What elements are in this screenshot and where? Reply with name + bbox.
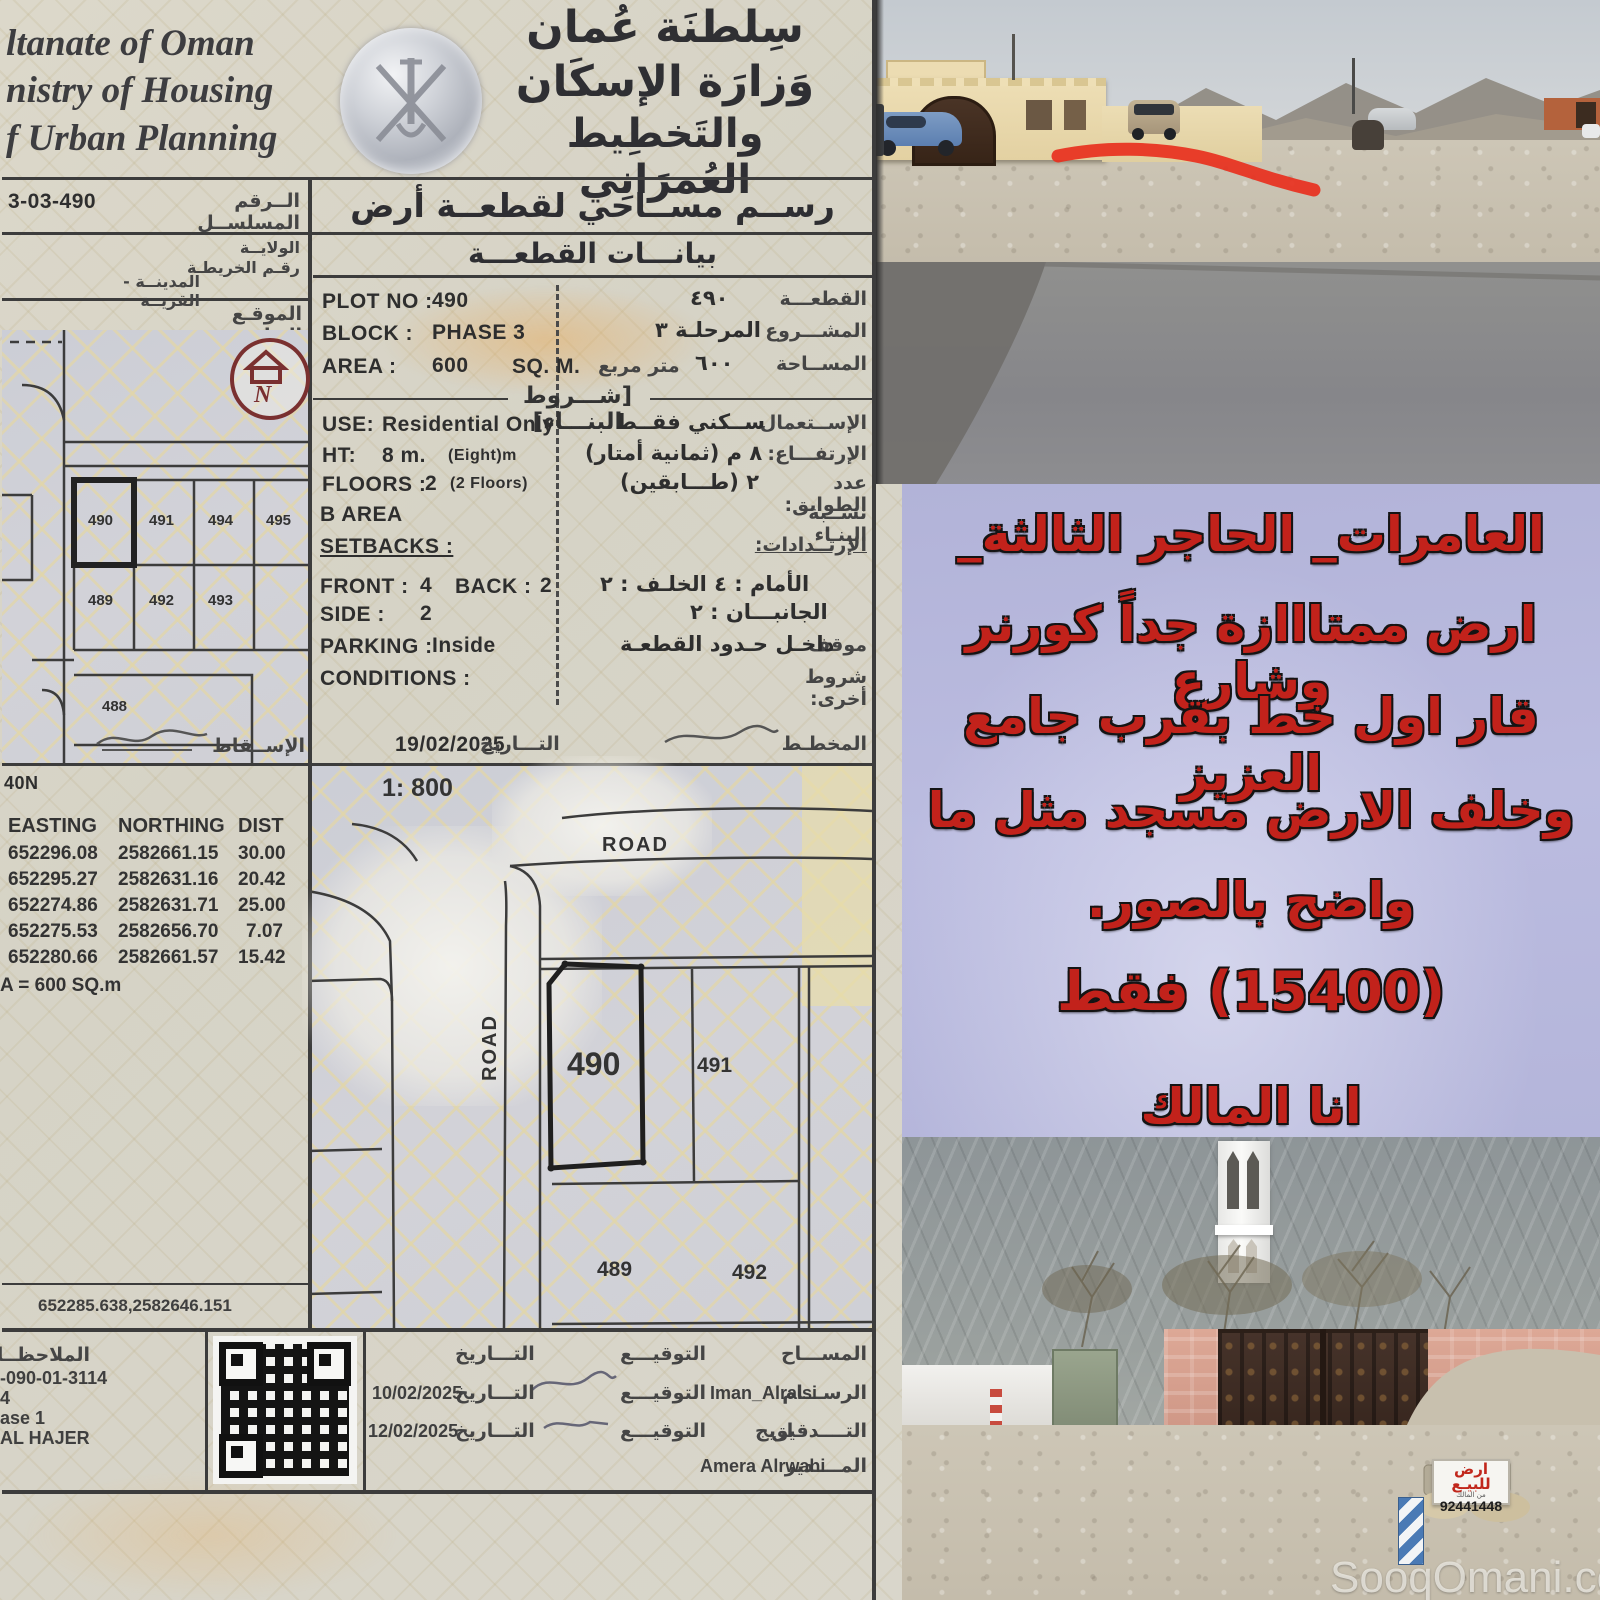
inset-plot-488: 488 (102, 698, 127, 715)
frame-line (2, 1283, 310, 1285)
qr-code (213, 1336, 357, 1484)
coord-d-3: 7.07 (246, 921, 283, 943)
height-value-ar: ٨ م (ثمانية أمتار) (585, 441, 762, 465)
minaret-arch-window (1227, 1151, 1239, 1209)
plan-plot-492: 492 (732, 1261, 767, 1285)
parking-value-ar: داخـل حـدود القطعـة (620, 632, 834, 656)
coord-e-4: 652280.66 (8, 947, 98, 969)
qr-finder (219, 1434, 263, 1478)
coord-n-1: 2582631.16 (118, 869, 218, 891)
north-arrow-icon: N (230, 338, 310, 420)
inset-plot-489: 489 (88, 592, 113, 609)
coords-header-easting: EASTING (8, 815, 97, 838)
coord-e-2: 652274.86 (8, 895, 98, 917)
front-back-ar: الأمام : ٤ الخلـف : ٢ (600, 572, 809, 596)
audit-date-label: التـــاريخ (455, 1420, 535, 1442)
coords-header-northing: NORTHING (118, 815, 225, 838)
serial-number-value: 3-03-490 (8, 190, 96, 214)
car-wheel (938, 140, 954, 156)
plot-no-label-en: PLOT NO : (322, 290, 433, 314)
oman-national-emblem-icon (340, 28, 482, 174)
floors-label-en: FLOORS : (322, 473, 426, 497)
frame-line (2, 232, 875, 235)
use-value-ar: ســكني فقــط (615, 410, 765, 434)
header-line-3: f Urban Planning (6, 115, 277, 162)
svg-text:N: N (253, 382, 273, 408)
document-title: رســم مســاحي لقطعــة أرض (320, 186, 865, 225)
planner-signature-scribble (92, 720, 212, 756)
frame-line (2, 1490, 875, 1494)
surveyor-date-label: التـــاريخ (455, 1343, 535, 1365)
ad-text-panel: العامرات_ الحاجر الثالثة_ ارض ممتااازة ج… (902, 484, 1600, 1137)
villa-parapet (876, 78, 1106, 86)
height-value2-en: (Eight)m (448, 447, 517, 465)
plan-plot-491: 491 (697, 1054, 732, 1078)
audit-signature-label: التوقيـــع (620, 1420, 706, 1442)
holographic-seal (340, 28, 482, 174)
area-value: 600 (432, 354, 469, 378)
parking-value-en: Inside (432, 634, 496, 658)
floors-value-ar: ٢ (طـــابقين) (620, 470, 759, 494)
inset-plot-493: 493 (208, 592, 233, 609)
survey-document: ltanate of Oman nistry of Housing f Urba… (0, 0, 905, 1600)
frame-line (2, 177, 875, 180)
setbacks-label-en: SETBACKS : (320, 535, 453, 559)
wilaya-label: الولايــة (200, 238, 300, 257)
inset-plot-492: 492 (149, 592, 174, 609)
audit-signature-scribble (540, 1412, 610, 1436)
block-label-en: BLOCK : (322, 322, 413, 346)
blue-car-window (886, 116, 926, 128)
coord-n-4: 2582661.57 (118, 947, 218, 969)
coord-d-1: 20.42 (238, 869, 286, 891)
notes-line-1: -090-01-3114 (0, 1368, 107, 1389)
power-pole (1012, 34, 1015, 80)
area-value-ar: ٦٠٠ (695, 351, 733, 375)
inset-plot-490: 490 (88, 512, 113, 529)
villa-window (1064, 100, 1086, 130)
header-line-2: nistry of Housing (6, 67, 277, 114)
qr-finder (307, 1342, 351, 1386)
coord-e-0: 652296.08 (8, 843, 98, 865)
coord-d-0: 30.00 (238, 843, 286, 865)
front-value-en: 4 (420, 574, 432, 598)
plan-road-label-left: ROAD (479, 1014, 502, 1081)
inset-plot-494: 494 (208, 512, 233, 529)
audit-date: 12/02/2025 (368, 1421, 458, 1442)
conditions-label-en: CONDITIONS : (320, 667, 471, 691)
utility-box (1052, 1349, 1118, 1437)
use-value-en: Residential Only (382, 413, 555, 437)
side-value-en: 2 (420, 602, 432, 626)
document-subtitle: بيانـــات القطعـــة (320, 237, 865, 270)
center-dashed-divider (556, 285, 559, 705)
watermark-text: SooqOmani.com (1330, 1553, 1600, 1600)
site-plan-map: 1: 800 ROAD ROAD 490 491 489 492 (312, 766, 872, 1328)
header-ar-line-2: وَزارَة الإسكَان (500, 57, 830, 107)
frame-line (363, 1330, 366, 1492)
plot-no-value: 490 (432, 289, 469, 313)
plot-no-label-ar: القطعـــة (775, 288, 867, 310)
inset-plot-491: 491 (149, 512, 174, 529)
for-sale-sign-title: ارض للبيـع (1434, 1462, 1508, 1492)
setbacks-label-ar: الإرتــدادات: (760, 534, 867, 556)
survey-date-label: التـــاريخ (480, 733, 560, 755)
ministry-header-arabic: سِلطنَة عُمان وَزارَة الإسكَان والتَخطِي… (500, 2, 830, 203)
map-number-label: رقـم الخريطـة (185, 258, 300, 277)
plot-no-value-ar: ٤٩٠ (690, 286, 728, 310)
audit-name: اريج (755, 1420, 793, 1442)
ministry-header-english: ltanate of Oman nistry of Housing f Urba… (6, 20, 277, 162)
coord-n-2: 2582631.71 (118, 895, 218, 917)
ad-line-1: العامرات_ الحاجر الثالثة_ (902, 506, 1600, 563)
for-sale-sign-phone: 92441448 (1434, 1499, 1508, 1514)
frame-line (313, 275, 875, 278)
plan-plot-489: 489 (597, 1258, 632, 1282)
draftsman-name: Iman_Alraisi (710, 1383, 817, 1404)
gate-center-post (1320, 1329, 1326, 1429)
front-label-en: FRONT : (320, 575, 409, 599)
villa-window (1026, 100, 1052, 130)
location-inset-map: 490 491 494 495 489 492 493 488 N (2, 330, 308, 763)
dark-object (1352, 120, 1384, 150)
block-value: PHASE 3 (432, 321, 525, 345)
back-value-en: 2 (540, 574, 552, 598)
ad-line-5: واضح بالصور. (902, 872, 1600, 929)
floors-value-en: 2 (425, 472, 437, 496)
draftsman-signature-scribble (528, 1368, 618, 1398)
notes-line-4: AL HAJER (0, 1428, 90, 1449)
planner-signature (660, 720, 780, 754)
side-ar: الجانبـــان : ٢ (690, 600, 828, 624)
frame-line (205, 1330, 208, 1492)
notes-line-2: 4 (0, 1388, 10, 1409)
coord-e-3: 652275.53 (8, 921, 98, 943)
plan-plot-490: 490 (567, 1046, 620, 1083)
asphalt-wet-patch (876, 262, 1600, 484)
minaret-arch-window (1247, 1151, 1259, 1209)
conditions-label-ar: شروط أخرى: (770, 666, 867, 710)
planner-label: المخطـط (800, 733, 867, 755)
draftsman-date-label: التـــاريخ (455, 1382, 535, 1404)
bracket-line (313, 398, 508, 400)
frame-line (2, 1328, 875, 1332)
area-unit-ar: متر مربع (598, 355, 680, 377)
surveyor-role: المســـاح (800, 1343, 867, 1365)
for-sale-sign: ارض للبيـع من المالك 92441448 (1432, 1459, 1510, 1505)
area-label-ar: المســاحة (775, 353, 867, 375)
coord-d-4: 15.42 (238, 947, 286, 969)
block-label-ar: المشـــروع (775, 320, 867, 342)
utm-zone: 40N (4, 773, 39, 794)
notes-title: الملاحظــات (10, 1344, 90, 1366)
qr-finder (219, 1342, 263, 1386)
ad-line-7-owner: انا المالك (902, 1078, 1600, 1135)
surveyor-signature-label: التوقيـــع (620, 1343, 706, 1365)
photo-left-edge-shadow (876, 0, 884, 484)
draftsman-signature-label: التوقيـــع (620, 1382, 706, 1404)
white-boundary-wall (902, 1365, 1058, 1427)
use-label-en: USE: (322, 413, 374, 437)
projection-label: الإســقاط (225, 735, 305, 757)
notes-line-3: ase 1 (0, 1408, 45, 1429)
mosque-photo: ارض للبيـع من المالك 92441448 (902, 1137, 1600, 1600)
coord-e-1: 652295.27 (8, 869, 98, 891)
listing-collage: ltanate of Oman nistry of Housing f Urba… (0, 0, 1600, 1600)
reference-coordinate: 652285.638,2582646.151 (38, 1296, 232, 1316)
white-car (1582, 124, 1600, 138)
manager-name: Amera Alrwahi (700, 1456, 825, 1477)
coord-d-2: 25.00 (238, 895, 286, 917)
coord-n-0: 2582661.15 (118, 843, 218, 865)
header-line-1: ltanate of Oman (6, 20, 277, 67)
floors-value2-en: (2 Floors) (450, 475, 528, 493)
height-value-en: 8 m. (382, 444, 426, 468)
area-unit: SQ. M. (512, 355, 580, 379)
minaret-balcony-band (1215, 1225, 1273, 1235)
plan-scale: 1: 800 (382, 774, 453, 803)
parking-label-en: PARKING : (320, 635, 433, 659)
serial-number-label: الــرقم المسلســل (150, 190, 300, 234)
red-marker-line (1046, 138, 1336, 208)
power-pole (1352, 58, 1355, 114)
back-label-en: BACK : (455, 575, 532, 599)
audit-role: التــــدقيق (795, 1420, 867, 1442)
suv-window (1134, 104, 1174, 115)
bracket-line (650, 398, 875, 400)
ad-price-line: (15400) فقط (902, 960, 1600, 1023)
ad-line-4: وخلف الارض مسجد مثل ما (902, 782, 1600, 839)
height-label-ar: الإرتفـــاع: (760, 443, 867, 465)
height-label-en: HT: (322, 444, 356, 468)
coord-n-3: 2582656.70 (118, 921, 218, 943)
coords-area-note: A = 600 SQ.m (0, 975, 121, 997)
city-village-label: المدينــة - القريــة (70, 272, 200, 310)
coords-header-dist: DIST (238, 815, 284, 838)
striped-barrier-pole (990, 1389, 1002, 1429)
plan-road-label-top: ROAD (602, 834, 669, 857)
use-label-ar: الإســتعمال (760, 412, 867, 434)
street-photo (876, 0, 1600, 484)
header-ar-line-1: سِلطنَة عُمان (500, 2, 830, 53)
inset-plot-495: 495 (266, 512, 291, 529)
block-value-ar: المرحلـة ٣ (655, 318, 761, 342)
barea-label-en: B AREA (320, 503, 403, 527)
area-label-en: AREA : (322, 355, 397, 379)
gravel-mound (1402, 1297, 1600, 1437)
north-arrow-glyph: N (234, 342, 298, 408)
draftsman-date: 10/02/2025 (372, 1383, 462, 1404)
side-label-en: SIDE : (320, 603, 385, 627)
